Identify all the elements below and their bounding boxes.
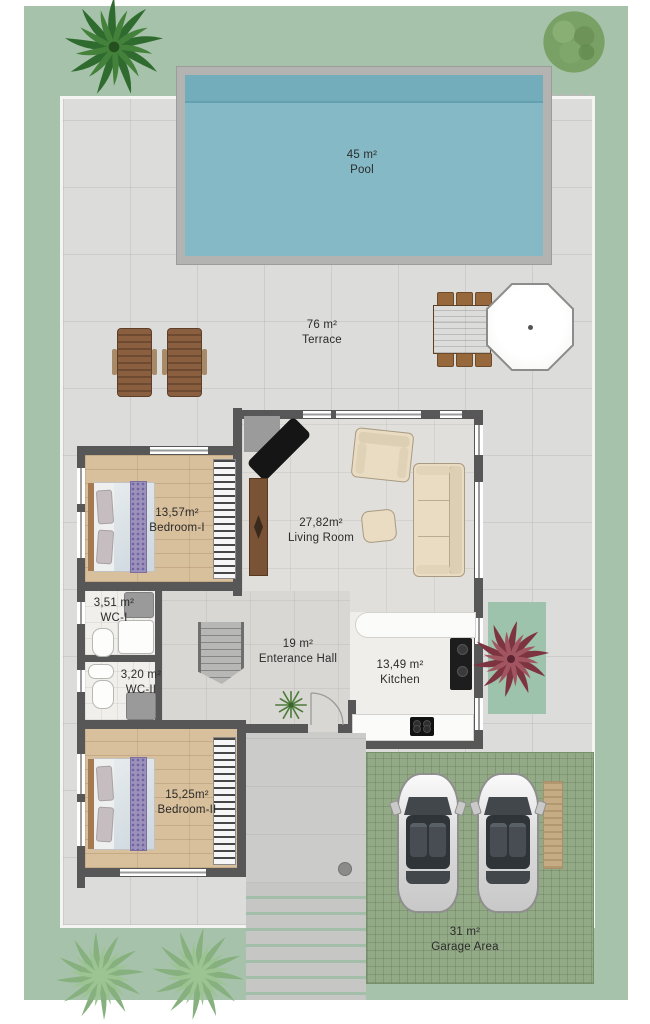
car-seat — [410, 823, 427, 857]
bed-pillow — [96, 806, 114, 842]
car — [477, 773, 539, 913]
floor-plan: 45 m² Pool 76 m² Terrace 13,57m² Bedroom… — [0, 0, 650, 1024]
bed-headboard — [88, 483, 94, 571]
kitchen-cooktop — [410, 717, 434, 736]
red-plant-icon — [466, 614, 556, 704]
fern-plant-icon — [148, 924, 248, 1024]
window — [77, 602, 85, 624]
lounger-armrest — [112, 349, 117, 375]
umbrella-pole — [528, 325, 533, 330]
window — [77, 512, 85, 558]
window — [77, 670, 85, 692]
palm-tree-icon — [60, 0, 168, 96]
car-cabin — [406, 815, 450, 869]
car-cabin — [486, 815, 530, 869]
dining-chair — [475, 353, 492, 367]
round-tree-icon — [540, 8, 608, 76]
room-area: 31 m² — [431, 925, 498, 940]
bed-runner — [130, 757, 147, 851]
lounger-armrest — [152, 349, 157, 375]
bed-runner — [130, 481, 147, 573]
lounger-armrest — [162, 349, 167, 375]
room-area: 45 m² — [347, 148, 377, 163]
wall-wc-divider — [77, 655, 162, 662]
hall-plant-icon — [272, 686, 310, 724]
car — [397, 773, 459, 913]
lounger-armrest — [202, 349, 207, 375]
dining-table — [433, 305, 491, 354]
bedroom1-bed — [93, 482, 155, 572]
wall-wc-right — [155, 588, 162, 728]
room-label-living-room: 27,82m² Living Room — [288, 516, 354, 546]
bed-pillow — [96, 529, 114, 564]
bed-headboard — [88, 759, 94, 849]
window — [77, 468, 85, 504]
window — [120, 869, 206, 876]
room-label-pool: 45 m² Pool — [347, 148, 377, 178]
sofa — [413, 463, 465, 577]
window — [303, 411, 331, 418]
window — [475, 482, 483, 578]
window — [440, 411, 462, 418]
wc2-toilet — [92, 680, 114, 709]
room-label-bedroom2: 15,25m² Bedroom-II — [158, 788, 217, 818]
dining-chair — [437, 292, 454, 306]
wall-hall-bottom-left — [242, 724, 308, 733]
dining-chair — [437, 353, 454, 367]
armchair-arm — [397, 447, 409, 479]
sofa-cushion-line — [418, 536, 450, 537]
room-name: Bedroom-II — [158, 803, 217, 818]
window — [475, 425, 483, 455]
window — [336, 411, 421, 418]
room-name: Terrace — [302, 333, 342, 348]
sun-lounger — [117, 328, 152, 397]
room-label-wc2: 3,20 m² WC-II — [121, 668, 161, 698]
sofa-cushion-line — [418, 500, 450, 501]
wall-kitchen-bottom — [348, 740, 483, 749]
wc2-sink — [88, 664, 114, 679]
bedroom2-bed — [93, 758, 155, 850]
pool-step — [185, 75, 543, 103]
room-name: Garage Area — [431, 940, 498, 955]
fern-plant-icon — [52, 928, 148, 1024]
room-name: Enterance Hall — [259, 652, 337, 667]
room-name: WC-II — [121, 683, 161, 698]
dining-chair — [475, 292, 492, 306]
tv-unit — [249, 478, 268, 576]
room-label-garage: 31 m² Garage Area — [431, 925, 498, 955]
garage-plank — [543, 781, 563, 869]
room-name: Living Room — [288, 531, 354, 546]
window — [77, 754, 85, 794]
car-seat — [509, 823, 526, 857]
room-area: 13,57m² — [149, 506, 205, 521]
car-seat — [429, 823, 446, 857]
room-name: WC-I — [94, 611, 134, 626]
room-area: 76 m² — [302, 318, 342, 333]
room-name: Bedroom-I — [149, 521, 205, 536]
armchair-arm — [355, 442, 367, 474]
sofa-armrest — [416, 466, 450, 475]
room-label-terrace: 76 m² Terrace — [302, 318, 342, 348]
car-windshield — [484, 797, 532, 815]
car-rear-window — [406, 871, 450, 884]
room-area: 27,82m² — [288, 516, 354, 531]
entrance-door-arc — [310, 692, 344, 726]
sun-lounger — [167, 328, 202, 397]
bed-pillow — [96, 765, 114, 801]
bed-pillow — [96, 489, 114, 524]
kitchen-counter-peninsula — [355, 612, 476, 638]
room-area: 13,49 m² — [377, 658, 424, 673]
room-area: 3,20 m² — [121, 668, 161, 683]
room-name: Pool — [347, 163, 377, 178]
dining-chair — [456, 353, 473, 367]
car-windshield — [404, 797, 452, 815]
dining-chair — [456, 292, 473, 306]
room-area: 19 m² — [259, 637, 337, 652]
manhole-dot — [338, 862, 352, 876]
window — [150, 447, 208, 454]
car-seat — [490, 823, 507, 857]
driveway — [246, 733, 366, 883]
window — [77, 802, 85, 846]
car-rear-window — [486, 871, 530, 884]
wall-bedroom2-right — [237, 720, 246, 877]
armchair — [351, 427, 415, 483]
room-label-wc1: 3,51 m² WC-I — [94, 596, 134, 626]
wall-bedroom2-top — [77, 720, 245, 729]
room-area: 3,51 m² — [94, 596, 134, 611]
umbrella-icon — [486, 283, 574, 371]
driveway-steps — [246, 883, 366, 1000]
room-label-kitchen: 13,49 m² Kitchen — [377, 658, 424, 688]
paving-dashed-edge — [551, 94, 593, 98]
room-label-bedroom1: 13,57m² Bedroom-I — [149, 506, 205, 536]
bedroom1-wardrobe — [213, 459, 236, 579]
sofa-armrest — [416, 565, 450, 574]
ottoman — [360, 508, 397, 543]
room-name: Kitchen — [377, 673, 424, 688]
wc1-toilet — [92, 628, 114, 657]
sofa-back — [449, 466, 462, 574]
room-label-entrance-hall: 19 m² Enterance Hall — [259, 637, 337, 667]
room-area: 15,25m² — [158, 788, 217, 803]
